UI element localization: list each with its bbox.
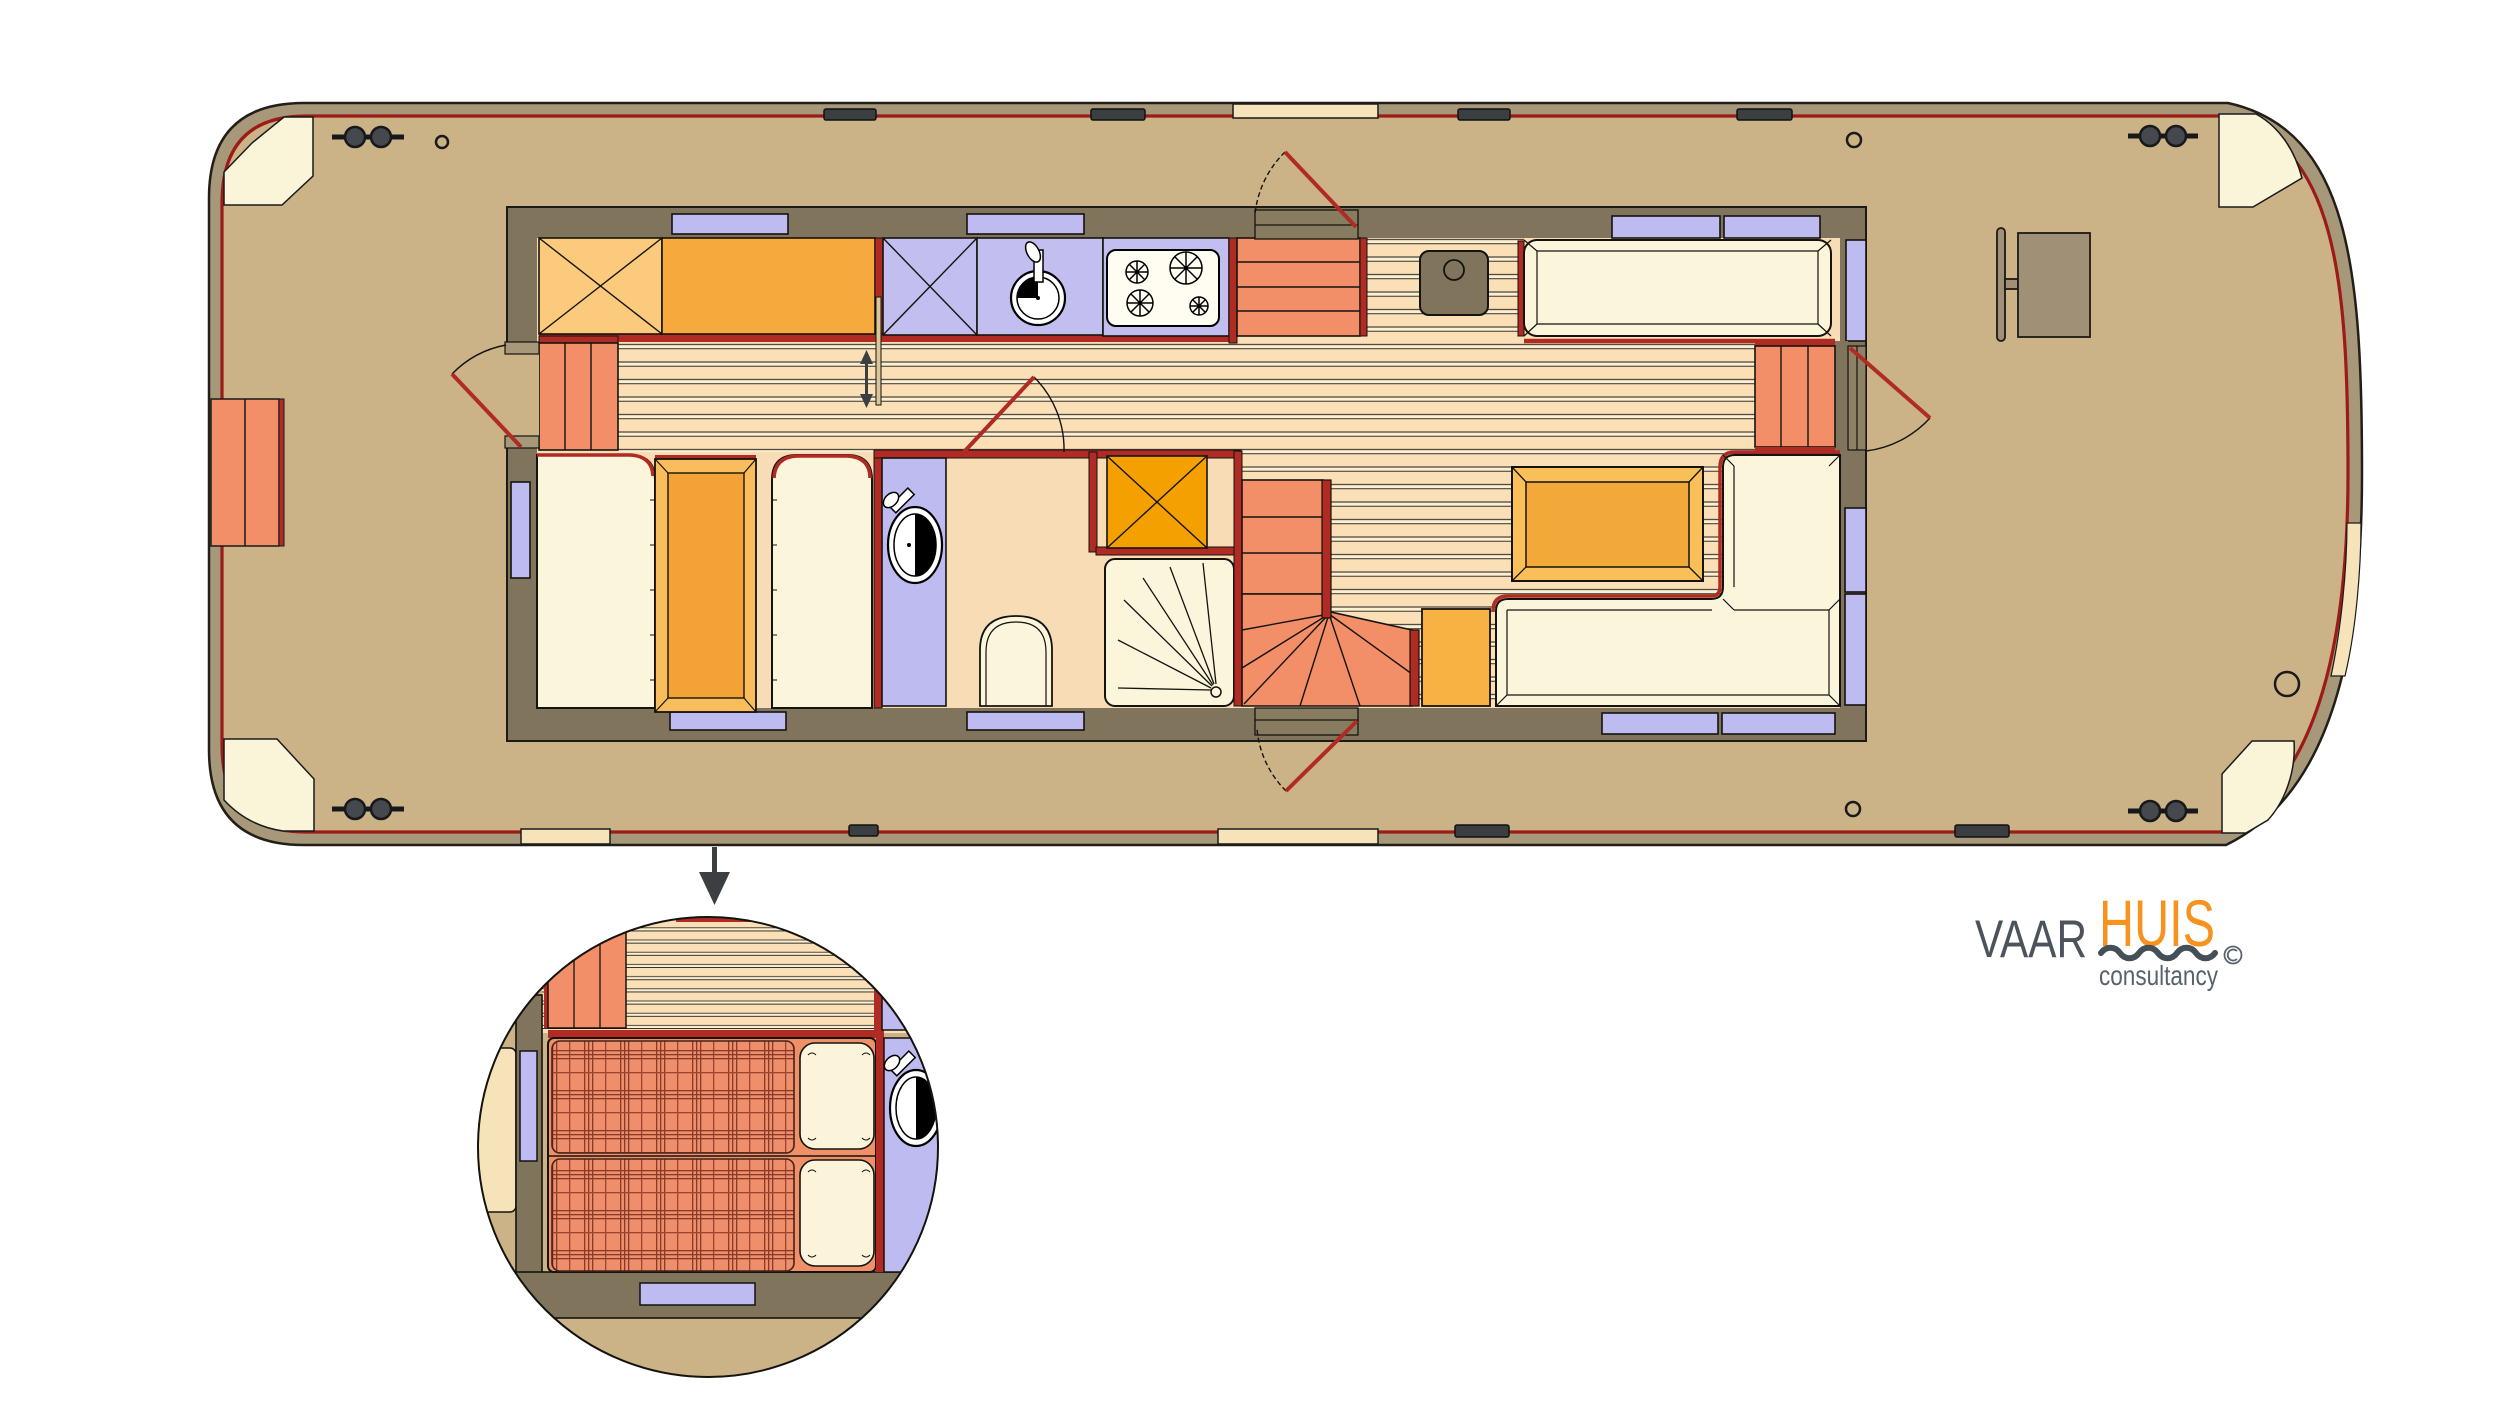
svg-text:VAAR: VAAR xyxy=(1975,910,2087,969)
svg-text:consultancy: consultancy xyxy=(2099,960,2218,991)
